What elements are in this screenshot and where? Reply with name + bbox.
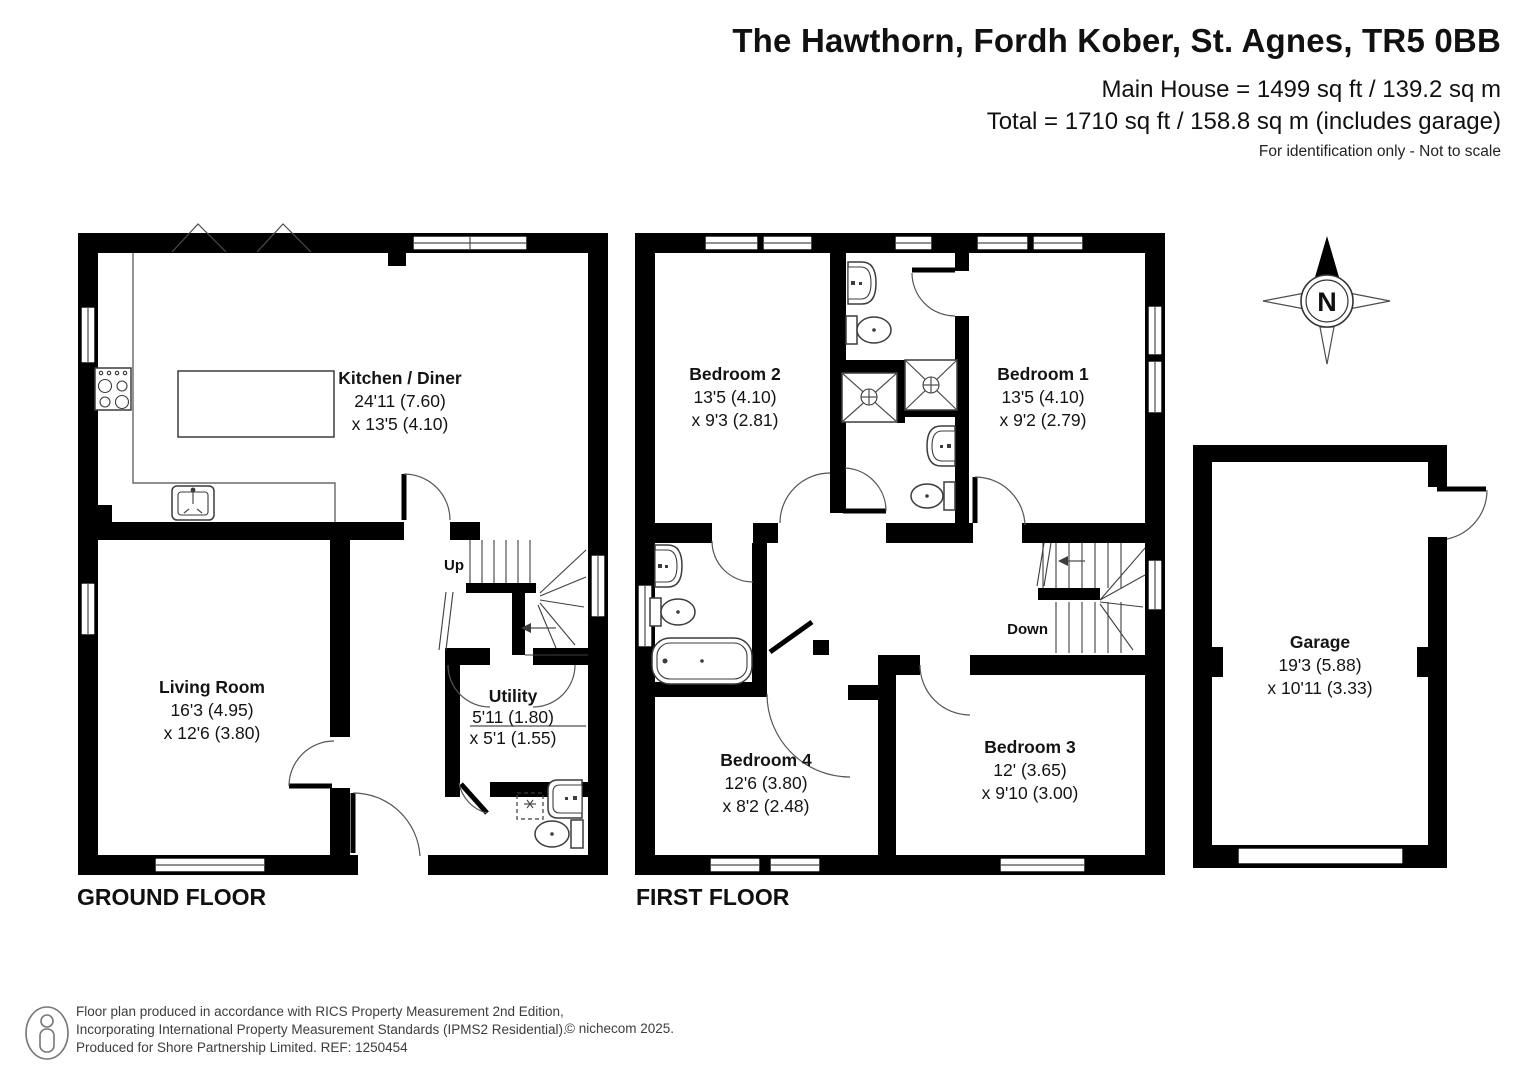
bedroom2-door: [780, 473, 830, 523]
utility-dim2: x 5'1 (1.55): [470, 728, 557, 748]
bathroom-sink-icon: [655, 545, 682, 587]
footer-line2: Incorporating International Property Mea…: [76, 1021, 567, 1039]
bedroom3-dim2: x 9'10 (3.00): [982, 783, 1079, 803]
ensuite2-door: [912, 270, 955, 316]
accessibility-person-icon: [26, 1007, 68, 1059]
kitchen-sink-icon: [172, 486, 214, 520]
first-floor-label: FIRST FLOOR: [636, 884, 790, 910]
kitchen-diner-dim2: x 13'5 (4.10): [352, 414, 449, 434]
kitchen-door: [404, 474, 450, 520]
wc-door: [459, 783, 487, 813]
first-floor-windows: [638, 236, 1162, 872]
bedroom3-name: Bedroom 3: [984, 737, 1076, 757]
garage-door-icon: [1238, 848, 1403, 864]
bedroom1-dim2: x 9'2 (2.79): [1000, 410, 1087, 430]
first-floor-plan: Down Bedroom 2 13'5 (4.10) x 9'3 (2.81) …: [635, 233, 1165, 910]
ground-floor-plan: Up Kitchen / Diner 24'11: [77, 224, 608, 910]
ensuite1-shower-icon: [842, 373, 897, 422]
floorplan-page: The Hawthorn, Fordh Kober, St. Agnes, TR…: [0, 0, 1527, 1080]
footer-disclaimer: Floor plan produced in accordance with R…: [76, 1003, 567, 1057]
bedroom1-name: Bedroom 1: [997, 364, 1089, 384]
ground-floor-label: GROUND FLOOR: [77, 884, 266, 910]
hob-icon: [95, 368, 131, 410]
wc-toilet-icon: [535, 820, 583, 848]
bedroom2-label: Bedroom 2 13'5 (4.10) x 9'3 (2.81): [689, 364, 781, 430]
bath-icon: [652, 638, 752, 684]
bedroom2-dim2: x 9'3 (2.81): [692, 410, 779, 430]
floorplan-drawing: Up Kitchen / Diner 24'11: [0, 0, 1527, 1080]
ensuite1-toilet-icon: [846, 316, 891, 344]
wc-sink-icon: [548, 780, 582, 818]
stairs-down-label: Down: [1007, 621, 1048, 638]
kitchen-diner-dim1: 24'11 (7.60): [354, 391, 446, 411]
stairs-up-label: Up: [444, 557, 464, 574]
bedroom2-name: Bedroom 2: [689, 364, 781, 384]
footer-line3: Produced for Shore Partnership Limited. …: [76, 1039, 567, 1057]
bedroom4-dim1: 12'6 (3.80): [724, 773, 807, 793]
ensuite2-shower-icon: [905, 360, 957, 410]
living-room-name: Living Room: [159, 677, 265, 697]
bedroom3-dim1: 12' (3.65): [993, 760, 1066, 780]
ensuite2-sink-icon: [927, 426, 955, 466]
garage-plan: Garage 19'3 (5.88) x 10'11 (3.33): [1193, 445, 1487, 868]
living-room-dim1: 16'3 (4.95): [170, 700, 253, 720]
garage-name: Garage: [1290, 632, 1351, 652]
bathroom-toilet-icon: [650, 598, 695, 626]
compass-north-label: N: [1317, 287, 1337, 317]
bedroom3-label: Bedroom 3 12' (3.65) x 9'10 (3.00): [982, 737, 1079, 803]
living-room-dim2: x 12'6 (3.80): [164, 723, 261, 743]
bedroom2-dim1: 13'5 (4.10): [693, 387, 776, 407]
garage-dim1: 19'3 (5.88): [1278, 655, 1361, 675]
cupboard-door: [770, 622, 812, 652]
compass-rose: N: [1263, 236, 1390, 364]
kitchen-diner-label: Kitchen / Diner 24'11 (7.60) x 13'5 (4.1…: [338, 368, 462, 434]
ensuite1-sink-icon: [848, 262, 876, 304]
kitchen-diner-name: Kitchen / Diner: [338, 368, 462, 388]
bedroom4-name: Bedroom 4: [720, 750, 812, 770]
stairs-down: Down: [1007, 543, 1145, 653]
garage-dim2: x 10'11 (3.33): [1267, 678, 1372, 698]
bedroom1-label: Bedroom 1 13'5 (4.10) x 9'2 (2.79): [997, 364, 1089, 430]
bedroom4-label: Bedroom 4 12'6 (3.80) x 8'2 (2.48): [720, 750, 812, 816]
bathroom-door: [712, 541, 753, 582]
bedroom1-dim1: 13'5 (4.10): [1001, 387, 1084, 407]
utility-label: Utility 5'11 (1.80) x 5'1 (1.55): [470, 686, 557, 748]
garage-label: Garage 19'3 (5.88) x 10'11 (3.33): [1267, 632, 1372, 698]
ensuite1-door: [843, 468, 886, 511]
bedroom4-dim2: x 8'2 (2.48): [723, 796, 810, 816]
footer-line1: Floor plan produced in accordance with R…: [76, 1003, 567, 1021]
entrance-door: [353, 793, 420, 856]
living-room-label: Living Room 16'3 (4.95) x 12'6 (3.80): [159, 677, 265, 743]
ensuite2-toilet-icon: [911, 482, 955, 510]
footer-copyright: © nichecom 2025.: [565, 1021, 674, 1036]
living-room-door: [289, 741, 334, 786]
utility-dim1: 5'11 (1.80): [472, 707, 554, 727]
bedroom3-door: [920, 665, 970, 715]
utility-name: Utility: [489, 686, 538, 706]
bedroom1-door: [975, 477, 1025, 525]
kitchen-island-icon: [178, 371, 334, 437]
